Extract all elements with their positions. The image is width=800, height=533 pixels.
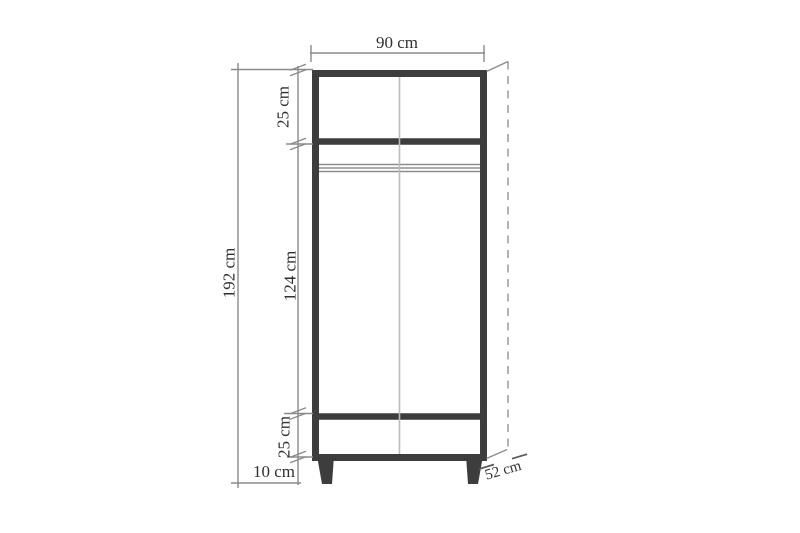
dimension-sections: 25 cm 124 cm 25 cm 10 cm: [253, 64, 313, 485]
dimension-width: 90 cm: [310, 33, 485, 62]
top-compartment-dim-label: 25 cm: [273, 86, 292, 128]
width-dim-label: 90 cm: [376, 33, 418, 52]
leg-height-dim-label: 10 cm: [253, 462, 295, 481]
depth-dim-stroke-right: [512, 454, 527, 459]
bottom-depth-edge: [487, 450, 508, 459]
wardrobe-body: [316, 74, 484, 485]
right-leg: [466, 456, 483, 484]
wardrobe-dimension-diagram: 90 cm 192 cm: [0, 0, 800, 533]
diagram-canvas: 90 cm 192 cm: [0, 0, 800, 533]
total-height-dim-label: 192 cm: [219, 248, 238, 299]
door-section-dim-label: 124 cm: [280, 251, 299, 302]
depth-dim-label: 52 cm: [483, 458, 523, 484]
left-leg: [317, 456, 334, 484]
top-depth-edge: [487, 62, 509, 72]
bottom-compartment-dim-label: 25 cm: [274, 416, 293, 458]
